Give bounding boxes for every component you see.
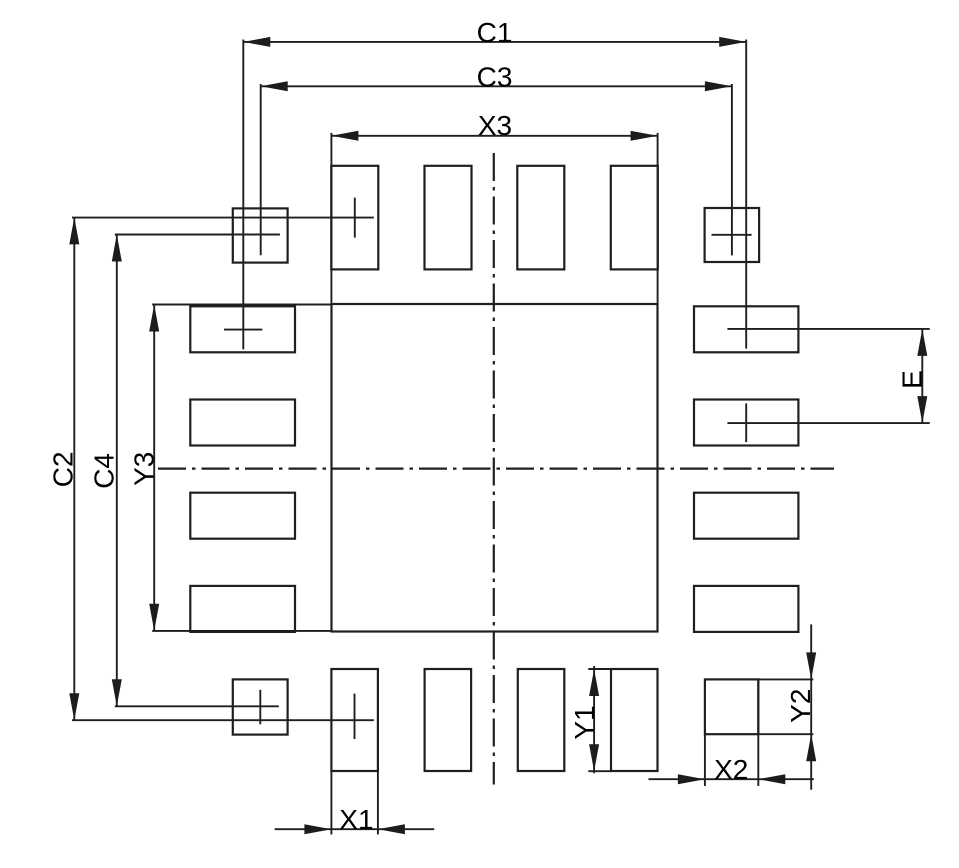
svg-text:X2: X2 xyxy=(714,754,748,785)
svg-text:E: E xyxy=(897,370,928,389)
svg-text:X3: X3 xyxy=(478,110,512,141)
svg-text:C1: C1 xyxy=(477,17,513,48)
svg-text:C4: C4 xyxy=(88,453,119,489)
svg-text:Y1: Y1 xyxy=(569,705,600,739)
svg-text:Y3: Y3 xyxy=(129,452,160,486)
svg-text:X1: X1 xyxy=(339,804,373,835)
svg-text:C3: C3 xyxy=(477,61,513,92)
svg-text:C2: C2 xyxy=(48,451,79,487)
svg-text:Y2: Y2 xyxy=(785,689,816,723)
